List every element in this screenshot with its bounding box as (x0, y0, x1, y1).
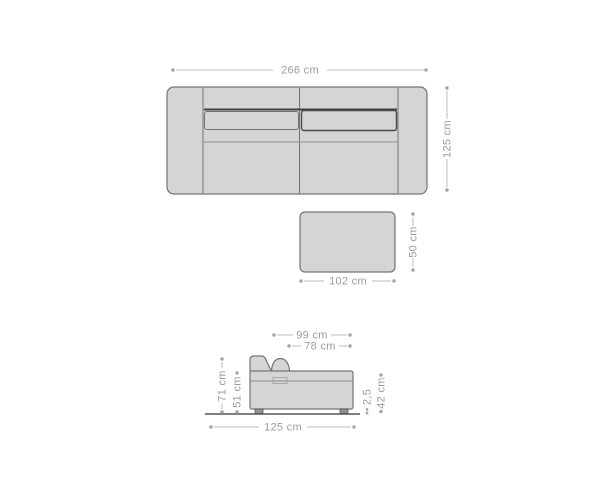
base-thickness-label: 2,5 (362, 389, 374, 405)
lumbar-pillow-right (302, 111, 397, 131)
dim-dot (392, 279, 395, 282)
backrest-profile (250, 356, 272, 372)
seat-height-label: 42 cm (376, 377, 388, 408)
sofa-width-label: 266 cm (281, 65, 319, 77)
dim-seat-depth: 78 cm (287, 341, 351, 353)
ottoman-width-label: 102 cm (329, 276, 367, 288)
dim-armrest-height: 51 cm (232, 371, 244, 413)
armrest-height-label: 51 cm (232, 376, 244, 407)
diagram-canvas: 266 cm 125 cm 50 cm (0, 0, 600, 500)
dim-ottoman-width: 102 cm (299, 276, 395, 288)
dim-dot (272, 333, 275, 336)
dim-dot (348, 344, 351, 347)
dim-dot (220, 410, 223, 413)
sofa-side-body (250, 371, 353, 409)
dim-dot (220, 357, 223, 360)
dim-dot (348, 333, 351, 336)
sofa-body-outline (167, 87, 427, 194)
sofa-depth-label: 125 cm (442, 120, 454, 158)
dim-dot (366, 412, 369, 415)
sofa-side-view: 99 cm 78 cm 71 cm (205, 330, 388, 434)
dim-dot (287, 344, 290, 347)
dim-dot (235, 371, 238, 374)
ottoman-top-view: 50 cm 102 cm (299, 212, 419, 288)
dim-base-thickness: 2,5 (362, 389, 374, 415)
back-cushion-profile (272, 359, 290, 373)
sofa-dimension-diagram: 266 cm 125 cm 50 cm (0, 0, 600, 500)
dim-dot (424, 68, 427, 71)
dim-dot (235, 410, 238, 413)
dim-dot (411, 268, 414, 271)
lumbar-pillow-left (205, 112, 299, 130)
dim-ottoman-depth: 50 cm (408, 212, 420, 271)
dim-dot (299, 279, 302, 282)
sofa-leg-left (255, 409, 263, 414)
dim-dot (209, 425, 212, 428)
sofa-leg-right (340, 409, 348, 414)
dim-dot (379, 410, 382, 413)
dim-total-depth: 125 cm (209, 422, 355, 434)
total-depth-label: 125 cm (264, 422, 302, 434)
dim-dot (411, 212, 414, 215)
dim-seat-height: 42 cm (376, 373, 388, 413)
dim-dot (171, 68, 174, 71)
seat-depth-label: 78 cm (304, 341, 335, 353)
sofa-top-view: 266 cm 125 cm (167, 65, 454, 195)
dim-dot (352, 425, 355, 428)
ottoman-depth-label: 50 cm (408, 226, 420, 257)
dim-sofa-depth: 125 cm (442, 86, 454, 191)
ottoman-outline (300, 212, 395, 272)
dim-sofa-width: 266 cm (171, 65, 427, 77)
dim-dot (445, 86, 448, 89)
back-height-label: 71 cm (217, 370, 229, 401)
dim-back-height: 71 cm (217, 357, 229, 413)
dim-dot (445, 188, 448, 191)
dim-dot (379, 373, 382, 376)
dim-dot (366, 408, 369, 411)
